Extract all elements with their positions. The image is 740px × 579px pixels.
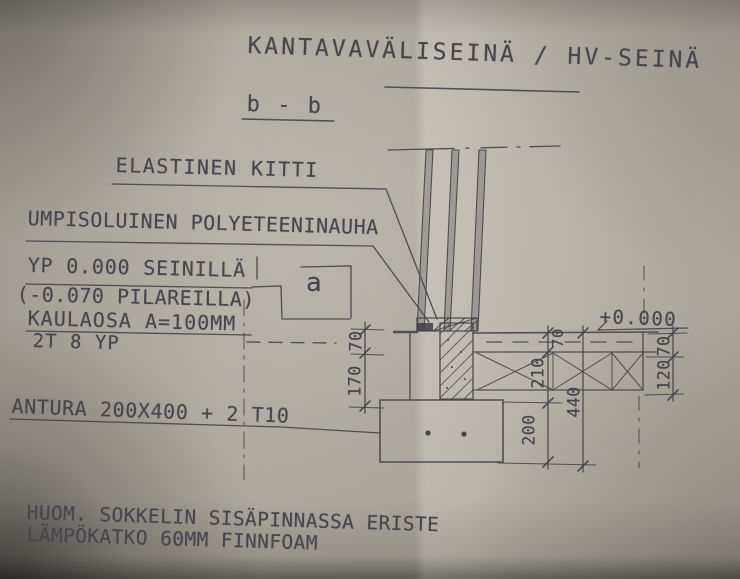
photo-of-drawing: KANTAVAVÄLISEINÄ / HV-SEINÄ b - b ELASTI… bbox=[0, 0, 740, 579]
plinth-aggregate-dot bbox=[460, 351, 462, 353]
wall-panel-3 bbox=[471, 150, 486, 331]
plinth-aggregate-dot bbox=[447, 339, 449, 341]
plinth-hatch bbox=[440, 323, 473, 399]
callout-elastic-sealant: ELASTINEN KITTI bbox=[115, 153, 319, 182]
section-marker-a: a bbox=[306, 268, 322, 298]
dim-left-upper: 70 bbox=[347, 331, 366, 352]
title-underline bbox=[385, 87, 579, 92]
floor-level-mark: +0.000 bbox=[599, 306, 677, 331]
rebar-dot bbox=[461, 431, 466, 436]
plinth-aggregate-dot bbox=[451, 366, 453, 368]
plinth-aggregate-dot bbox=[446, 387, 448, 389]
footing-outline bbox=[380, 400, 503, 462]
section-ref-underline bbox=[242, 119, 334, 121]
callout-top-rebar: 2T 8 YP bbox=[32, 330, 120, 354]
plinth-aggregate-dot bbox=[464, 378, 466, 380]
dim-overall: 440 bbox=[565, 386, 584, 417]
dim-right-slab: 70 bbox=[655, 336, 674, 357]
bracket-level bbox=[252, 286, 350, 319]
dim-mid-plinth: 210 bbox=[529, 357, 548, 388]
dim-mid-footing: 200 bbox=[520, 414, 539, 445]
hidden-floor-line-left bbox=[247, 342, 336, 343]
dim-left-lower: 170 bbox=[346, 365, 365, 396]
dim-mid-slab: 70 bbox=[549, 328, 567, 348]
dim-right-base: 120 bbox=[655, 359, 674, 390]
wall-cut-line bbox=[388, 146, 560, 150]
callout-level-walls: YP 0.000 SEINILLÄ bbox=[27, 253, 246, 282]
base-cross-bracing bbox=[477, 353, 643, 390]
rebar-dot bbox=[425, 430, 430, 435]
plinth-outline bbox=[440, 323, 473, 399]
drawing-area: KANTAVAVÄLISEINÄ / HV-SEINÄ b - b ELASTI… bbox=[0, 0, 740, 579]
wall-panel-2 bbox=[444, 150, 459, 331]
sill-dark-fill bbox=[417, 323, 433, 331]
section-ref: b - b bbox=[246, 92, 323, 119]
